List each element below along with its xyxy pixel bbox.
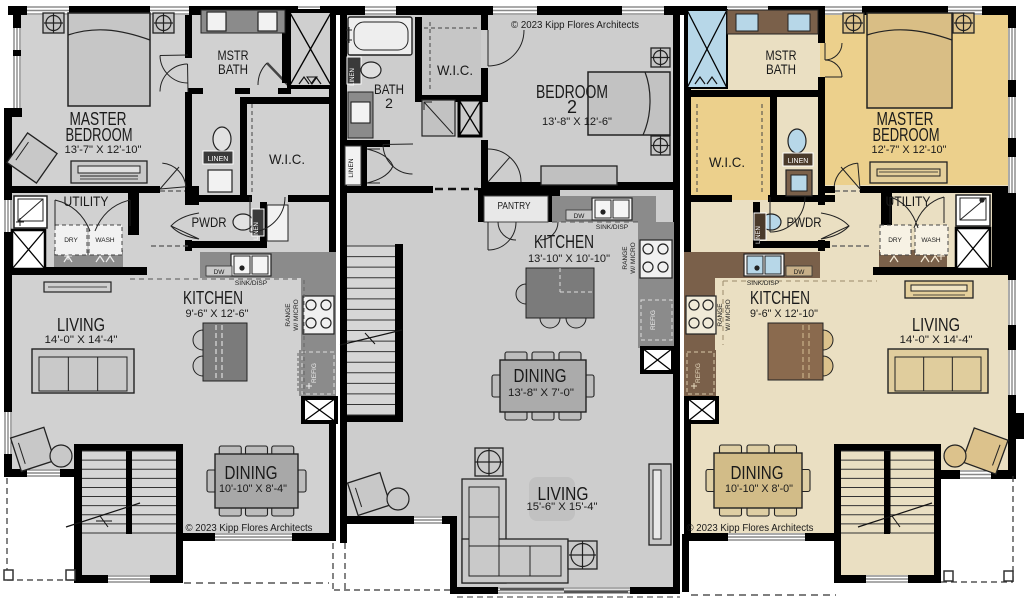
svg-text:13'-7" X 12'-10": 13'-7" X 12'-10": [65, 144, 142, 156]
svg-text:DRY: DRY: [64, 237, 78, 244]
svg-text:2: 2: [567, 97, 577, 117]
svg-text:LINEN: LINEN: [350, 68, 356, 86]
svg-text:BATH: BATH: [766, 61, 796, 77]
svg-text:REFIG: REFIG: [311, 363, 318, 383]
svg-text:W/ MICRO: W/ MICRO: [630, 242, 637, 273]
svg-text:SINK/DISP: SINK/DISP: [747, 280, 779, 287]
svg-text:DW: DW: [574, 213, 586, 220]
svg-text:13'-10" X 10'-10": 13'-10" X 10'-10": [528, 253, 610, 265]
svg-text:W.I.C.: W.I.C.: [709, 154, 745, 170]
svg-text:KITCHEN: KITCHEN: [750, 288, 810, 308]
svg-text:PANTRY: PANTRY: [498, 201, 531, 212]
svg-text:REFIG: REFIG: [650, 310, 657, 330]
svg-text:2: 2: [385, 95, 393, 111]
svg-text:SINK/DISP: SINK/DISP: [596, 224, 628, 231]
svg-text:UTILITY: UTILITY: [886, 193, 932, 209]
svg-text:DINING: DINING: [731, 463, 784, 483]
svg-text:DRY: DRY: [888, 237, 902, 244]
svg-text:14'-0" X 14'-4": 14'-0" X 14'-4": [45, 334, 118, 346]
svg-text:RANGE: RANGE: [285, 303, 292, 327]
svg-text:WASH: WASH: [95, 237, 115, 244]
svg-text:W/ MICRO: W/ MICRO: [725, 299, 732, 330]
svg-text:© 2023 Kipp Flores Architects: © 2023 Kipp Flores Architects: [511, 19, 639, 31]
svg-text:REFIG: REFIG: [695, 363, 702, 383]
svg-text:15'-6" X 15'-4": 15'-6" X 15'-4": [527, 501, 598, 513]
svg-text:LIVING: LIVING: [912, 315, 960, 335]
svg-text:LIVING: LIVING: [57, 315, 105, 335]
svg-text:LINEN: LINEN: [208, 156, 229, 163]
svg-text:13'-8" X 12'-6": 13'-8" X 12'-6": [542, 116, 612, 128]
svg-text:W.I.C.: W.I.C.: [269, 151, 305, 167]
svg-text:PWDR: PWDR: [787, 214, 822, 230]
svg-text:10'-10" X 8'-0": 10'-10" X 8'-0": [725, 483, 793, 495]
svg-text:BEDROOM: BEDROOM: [66, 125, 133, 145]
svg-text:RANGE: RANGE: [622, 246, 629, 270]
svg-text:DINING: DINING: [514, 366, 567, 386]
svg-text:SINK/DISP: SINK/DISP: [235, 280, 267, 287]
svg-text:DW: DW: [794, 269, 806, 276]
svg-text:KITCHEN: KITCHEN: [183, 288, 243, 308]
svg-text:© 2023 Kipp Flores Architects: © 2023 Kipp Flores Architects: [687, 522, 814, 534]
svg-text:© 2023 Kipp Flores Architects: © 2023 Kipp Flores Architects: [186, 522, 313, 534]
svg-text:W.I.C.: W.I.C.: [437, 62, 473, 78]
svg-text:9'-6" X 12'-6": 9'-6" X 12'-6": [186, 308, 249, 320]
svg-text:UTILITY: UTILITY: [64, 193, 110, 209]
svg-text:13'-8" X 7'-0": 13'-8" X 7'-0": [508, 387, 574, 399]
svg-text:DW: DW: [214, 269, 226, 276]
svg-text:LINEN: LINEN: [788, 158, 809, 165]
svg-text:WASH: WASH: [921, 237, 941, 244]
svg-text:PWDR: PWDR: [192, 214, 227, 230]
svg-text:LINEN: LINEN: [254, 222, 260, 240]
svg-text:W/ MICRO: W/ MICRO: [293, 299, 300, 330]
svg-text:LINEN: LINEN: [348, 158, 355, 177]
svg-text:14'-0" X 14'-4": 14'-0" X 14'-4": [900, 334, 973, 346]
svg-text:DINING: DINING: [225, 463, 278, 483]
svg-text:10'-10" X 8'-4": 10'-10" X 8'-4": [219, 483, 287, 495]
svg-text:LINEN: LINEN: [756, 226, 762, 244]
svg-text:9'-6" X 12'-10": 9'-6" X 12'-10": [750, 308, 818, 320]
svg-text:KITCHEN: KITCHEN: [534, 232, 594, 252]
svg-text:BATH: BATH: [218, 61, 248, 77]
svg-text:BEDROOM: BEDROOM: [873, 125, 940, 145]
svg-text:RANGE: RANGE: [717, 303, 724, 327]
svg-text:12'-7" X 12'-10": 12'-7" X 12'-10": [872, 144, 947, 156]
